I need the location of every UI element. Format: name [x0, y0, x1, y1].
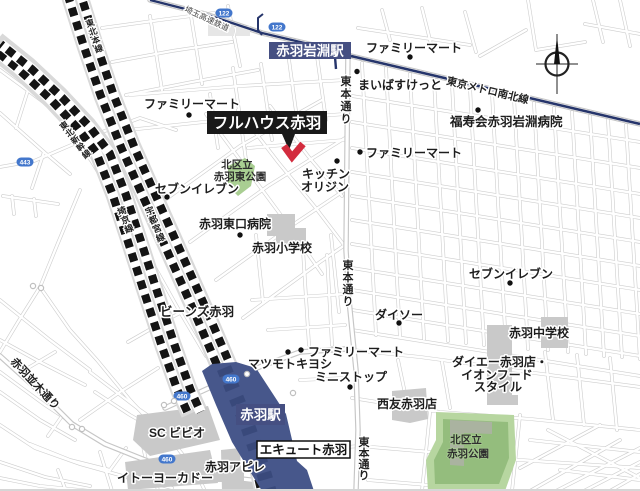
svg-text:SC ビビオ: SC ビビオ [149, 425, 205, 440]
svg-text:赤羽東口病院: 赤羽東口病院 [199, 216, 271, 231]
svg-text:フルハウス赤羽: フルハウス赤羽 [213, 113, 322, 132]
svg-text:り: り [341, 113, 352, 126]
svg-text:福寿会赤羽岩淵病院: 福寿会赤羽岩淵病院 [449, 114, 563, 129]
svg-text:460: 460 [177, 394, 188, 401]
svg-text:まいばすけっと: まいばすけっと [358, 77, 442, 92]
svg-text:ファミリーマート: ファミリーマート [366, 146, 462, 160]
svg-text:北区立: 北区立 [221, 158, 253, 171]
svg-text:赤羽東公園: 赤羽東公園 [214, 170, 267, 183]
svg-text:460: 460 [226, 377, 237, 384]
svg-text:東: 東 [343, 258, 355, 272]
svg-text:り: り [343, 295, 354, 308]
svg-text:北区立: 北区立 [450, 433, 482, 446]
svg-text:本: 本 [341, 87, 352, 101]
svg-text:ビーンズ赤羽: ビーンズ赤羽 [160, 304, 234, 319]
svg-text:赤羽駅: 赤羽駅 [240, 408, 281, 423]
svg-text:122: 122 [219, 11, 230, 18]
svg-text:赤羽公園: 赤羽公園 [447, 447, 489, 460]
svg-text:ダイソー: ダイソー [375, 307, 423, 322]
svg-text:ダイエー赤羽店・: ダイエー赤羽店・ [452, 354, 548, 369]
svg-text:マツモトキヨシ: マツモトキヨシ [248, 357, 332, 371]
svg-text:赤羽岩淵駅: 赤羽岩淵駅 [276, 43, 344, 59]
svg-text:通: 通 [341, 100, 352, 113]
svg-text:イトーヨーカドー: イトーヨーカドー [117, 471, 213, 485]
svg-text:赤羽小学校: 赤羽小学校 [252, 240, 313, 255]
svg-text:セブンイレブン: セブンイレブン [155, 181, 239, 196]
svg-text:オリジン: オリジン [301, 180, 349, 194]
svg-text:ファミリーマート: ファミリーマート [366, 41, 462, 55]
svg-text:キッチン: キッチン [302, 167, 350, 181]
svg-text:本: 本 [359, 446, 370, 460]
svg-text:通: 通 [343, 283, 354, 296]
svg-text:東: 東 [359, 435, 371, 449]
svg-text:ミニストップ: ミニストップ [315, 369, 388, 384]
svg-text:ファミリーマート: ファミリーマート [144, 97, 240, 111]
svg-text:460: 460 [162, 457, 173, 464]
svg-text:エキュート赤羽: エキュート赤羽 [260, 442, 348, 457]
svg-text:セブンイレブン: セブンイレブン [469, 266, 553, 281]
svg-text:スタイル: スタイル [474, 380, 522, 394]
svg-text:り: り [359, 469, 370, 482]
svg-text:西友赤羽店: 西友赤羽店 [377, 396, 437, 411]
svg-text:122: 122 [272, 25, 283, 32]
svg-text:443: 443 [20, 160, 31, 167]
svg-text:赤羽中学校: 赤羽中学校 [509, 325, 570, 340]
svg-text:本: 本 [343, 270, 354, 284]
svg-text:東: 東 [341, 74, 353, 88]
svg-text:赤羽アピレ: 赤羽アピレ [205, 459, 265, 474]
